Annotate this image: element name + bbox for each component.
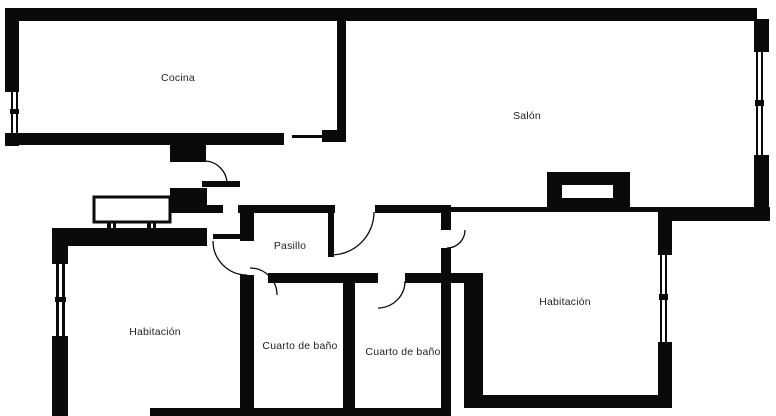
bath1-door-arc: [250, 268, 277, 295]
wall-bath2-top-right: [405, 273, 483, 283]
wall-bath2-top-left: [355, 273, 378, 283]
wall-bed2-bottom: [464, 395, 672, 408]
floor-plan: Cocina Salón Pasillo Habitación Cuarto d…: [0, 0, 776, 416]
salon-door-arc: [331, 212, 374, 255]
kitchen-hatch-line: [292, 135, 322, 138]
wall-bottom-band: [150, 408, 451, 416]
entry-door-arc: [204, 161, 227, 184]
room-label-habitacion-1: Habitación: [129, 326, 181, 338]
wall-salon-bed2-divider: [451, 207, 658, 212]
bed2-door-arc: [447, 230, 465, 248]
wall-bed1-top: [52, 228, 207, 246]
bath2-door-arc: [378, 281, 405, 308]
room-label-cuarto-de-bano-2: Cuarto de baño: [365, 346, 440, 358]
room-label-habitacion-2: Habitación: [539, 296, 591, 308]
radiator: [94, 197, 170, 228]
wall-bed2-left: [464, 283, 483, 403]
room-label-cocina: Cocina: [161, 72, 195, 84]
wall-bath1-top: [268, 273, 355, 283]
interior-walls: [52, 205, 658, 416]
bed2-window: [659, 255, 668, 342]
room-label-cuarto-de-bano-1: Cuarto de baño: [262, 340, 337, 352]
entry-walls: [170, 140, 240, 213]
wall-entry-jamb-upper: [170, 140, 206, 162]
wall-left-upper: [5, 8, 19, 92]
wall-bath1-left: [240, 275, 254, 416]
wall-right-upper: [754, 19, 769, 52]
wall-pasillo-top-c: [375, 205, 451, 213]
salon-door-leaf: [328, 213, 334, 257]
wall-kitchen-right: [337, 18, 346, 142]
wall-southeast-band: [658, 207, 770, 221]
wall-bed2-door-jamb-upper: [441, 205, 451, 230]
bed1-door-arc: [213, 241, 247, 275]
bed1-door-leaf: [213, 234, 247, 239]
room-label-salon: Salón: [513, 110, 541, 122]
wall-kitchen-bottom: [8, 133, 284, 145]
salon-window: [755, 52, 764, 155]
wall-bed2-right-upper: [658, 212, 672, 255]
wall-top: [8, 8, 757, 21]
bed1-window: [55, 264, 66, 336]
wall-between-bathrooms: [343, 283, 355, 408]
wall-bed1-left-lower: [52, 336, 68, 416]
wall-bed2-door-jamb-lower: [441, 248, 451, 276]
fireplace: [547, 172, 630, 207]
wall-bath2-right: [441, 283, 451, 408]
entry-door-leaf: [202, 181, 240, 187]
wall-pasillo-top-a: [170, 205, 223, 213]
kitchen-window: [10, 92, 19, 133]
room-label-pasillo: Pasillo: [274, 240, 306, 252]
